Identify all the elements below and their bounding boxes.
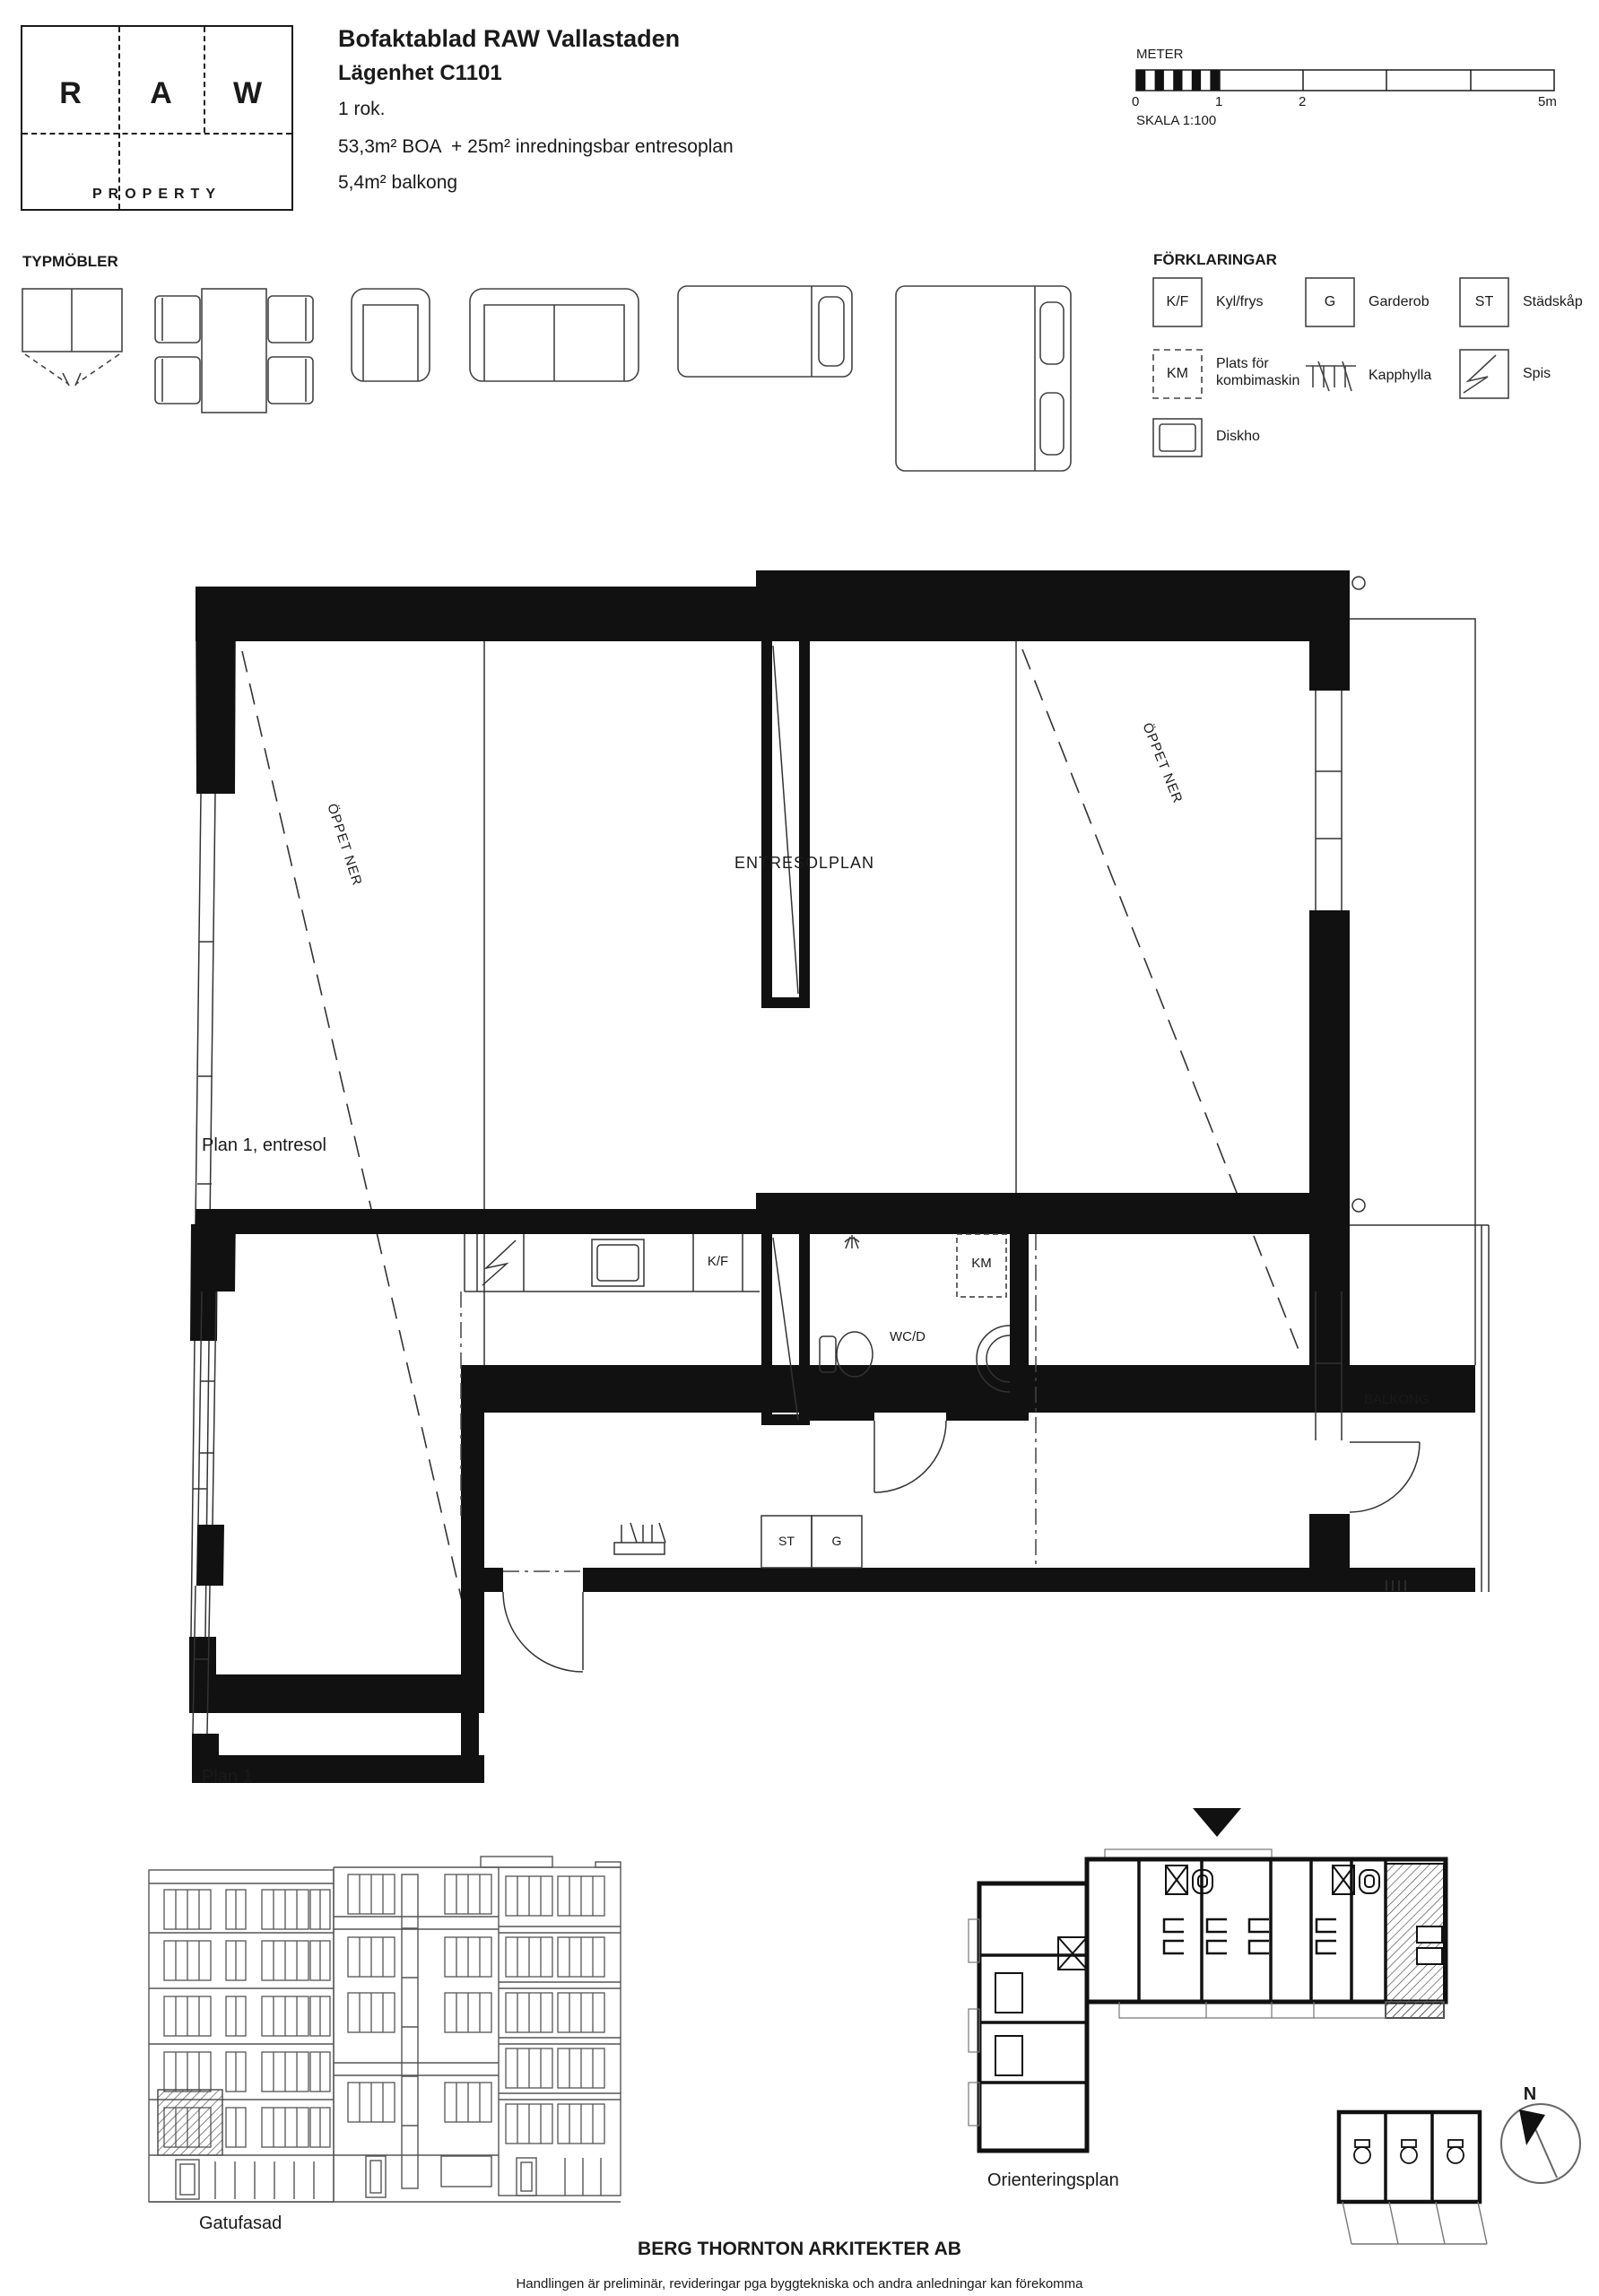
scale-bar-graphic — [1136, 70, 1554, 91]
fridge-label: K/F — [693, 1254, 743, 1269]
legend-stove-symbol — [1460, 350, 1508, 398]
facade-middle — [334, 1857, 621, 2202]
legend-coatrack-label: Kapphylla — [1369, 368, 1431, 384]
area-info: 53,3m² BOA + 25m² inredningsbar entresop… — [338, 136, 734, 158]
scale-bar-stripes — [1136, 70, 1220, 91]
orientation-caption: Orienteringsplan — [987, 2170, 1119, 2191]
legend-kf-label: Kyl/frys — [1216, 294, 1263, 310]
legend-sink-symbol — [1153, 419, 1202, 457]
wardrobe-symbol — [22, 289, 122, 386]
scalebar-tick-2: 2 — [1299, 94, 1306, 109]
room-count: 1 rok. — [338, 99, 386, 120]
plan1-caption: Plan 1 — [202, 1767, 253, 1787]
entresol-room-label: ENTRESOLPLAN — [734, 854, 874, 873]
compass — [1501, 2104, 1580, 2183]
legend-g-symbol: G — [1306, 294, 1354, 310]
logo-divider — [22, 133, 291, 135]
legend-sink-label: Diskho — [1216, 429, 1260, 445]
furniture-heading: TYPMÖBLER — [22, 253, 118, 271]
legend-km-symbol: KM — [1153, 366, 1202, 382]
balcony-info: 5,4m² balkong — [338, 172, 457, 194]
location-pointer — [1193, 1808, 1241, 1837]
washer-label: KM — [957, 1256, 1006, 1271]
bofaktablad-sheet: R A W PROPERTY Bofaktablad RAW Vallastad… — [0, 0, 1599, 2296]
legend-heading: FÖRKLARINGAR — [1153, 251, 1277, 269]
plan1-bathroom — [820, 1234, 1010, 1492]
legend-km-label: Plats för kombimaskin — [1216, 355, 1334, 389]
facade-ground-floor — [149, 2155, 621, 2202]
balcony-door — [1350, 1442, 1420, 1512]
sofa-symbol — [470, 289, 639, 381]
orientation-annex-block — [1339, 2112, 1487, 2244]
facade-right — [499, 1867, 621, 2196]
wc-door — [874, 1421, 946, 1492]
scalebar-unit-label: METER — [1136, 47, 1184, 62]
logo-letter-r: R — [22, 76, 118, 111]
disclaimer: Handlingen är preliminär, revideringar p… — [0, 2276, 1599, 2292]
scalebar-scale-label: SKALA 1:100 — [1136, 113, 1216, 128]
raw-property-logo: R A W PROPERTY — [21, 25, 293, 211]
st-label: ST — [761, 1534, 812, 1548]
compass-north-label: N — [1512, 2084, 1548, 2105]
coatrack-symbol — [614, 1523, 665, 1554]
orientation-wing-outline — [979, 1883, 1087, 2151]
logo-letter-w: W — [204, 76, 291, 111]
facade-apartment-highlight — [158, 2090, 222, 2155]
furniture-symbols — [22, 286, 1071, 471]
armchair-symbol — [352, 289, 430, 381]
architect-name: BERG THORNTON ARKITEKTER AB — [0, 2239, 1599, 2260]
apartment-id: Lägenhet C1101 — [338, 61, 502, 86]
double-bed-symbol — [896, 286, 1071, 471]
legend-g-label: Garderob — [1369, 294, 1430, 310]
plan1-thin-lines — [193, 1199, 1365, 1734]
stove-symbol — [482, 1240, 516, 1285]
facade-drawing — [149, 1857, 621, 2202]
logo-letter-a: A — [118, 76, 204, 111]
balcony-label: BALKONG — [1364, 1392, 1430, 1407]
compass-needle — [1519, 2109, 1545, 2145]
legend-stove-label: Spis — [1523, 366, 1551, 382]
orientation-unit-walls — [979, 1859, 1386, 2083]
logo-divider — [118, 27, 120, 209]
legend-st-symbol: ST — [1460, 294, 1508, 310]
scalebar-tick-1: 1 — [1215, 94, 1222, 109]
logo-word: PROPERTY — [22, 187, 291, 203]
entresol-caption: Plan 1, entresol — [202, 1135, 326, 1156]
shower-symbol — [845, 1235, 859, 1248]
sheet-title: Bofaktablad RAW Vallastaden — [338, 25, 680, 53]
entresol-thin-lines — [191, 577, 1475, 1637]
scalebar-tick-5m: 5m — [1538, 94, 1557, 109]
single-bed-symbol — [678, 286, 852, 377]
sink-symbol — [592, 1239, 644, 1286]
legend-kf-symbol: K/F — [1153, 294, 1202, 310]
bathroom-label: WC/D — [890, 1329, 926, 1344]
legend-st-label: Städskåp — [1523, 294, 1583, 310]
facade-caption: Gatufasad — [199, 2213, 282, 2234]
g-label: G — [812, 1534, 862, 1548]
dining-table-symbol — [155, 289, 313, 413]
scalebar-tick-0: 0 — [1132, 94, 1139, 109]
